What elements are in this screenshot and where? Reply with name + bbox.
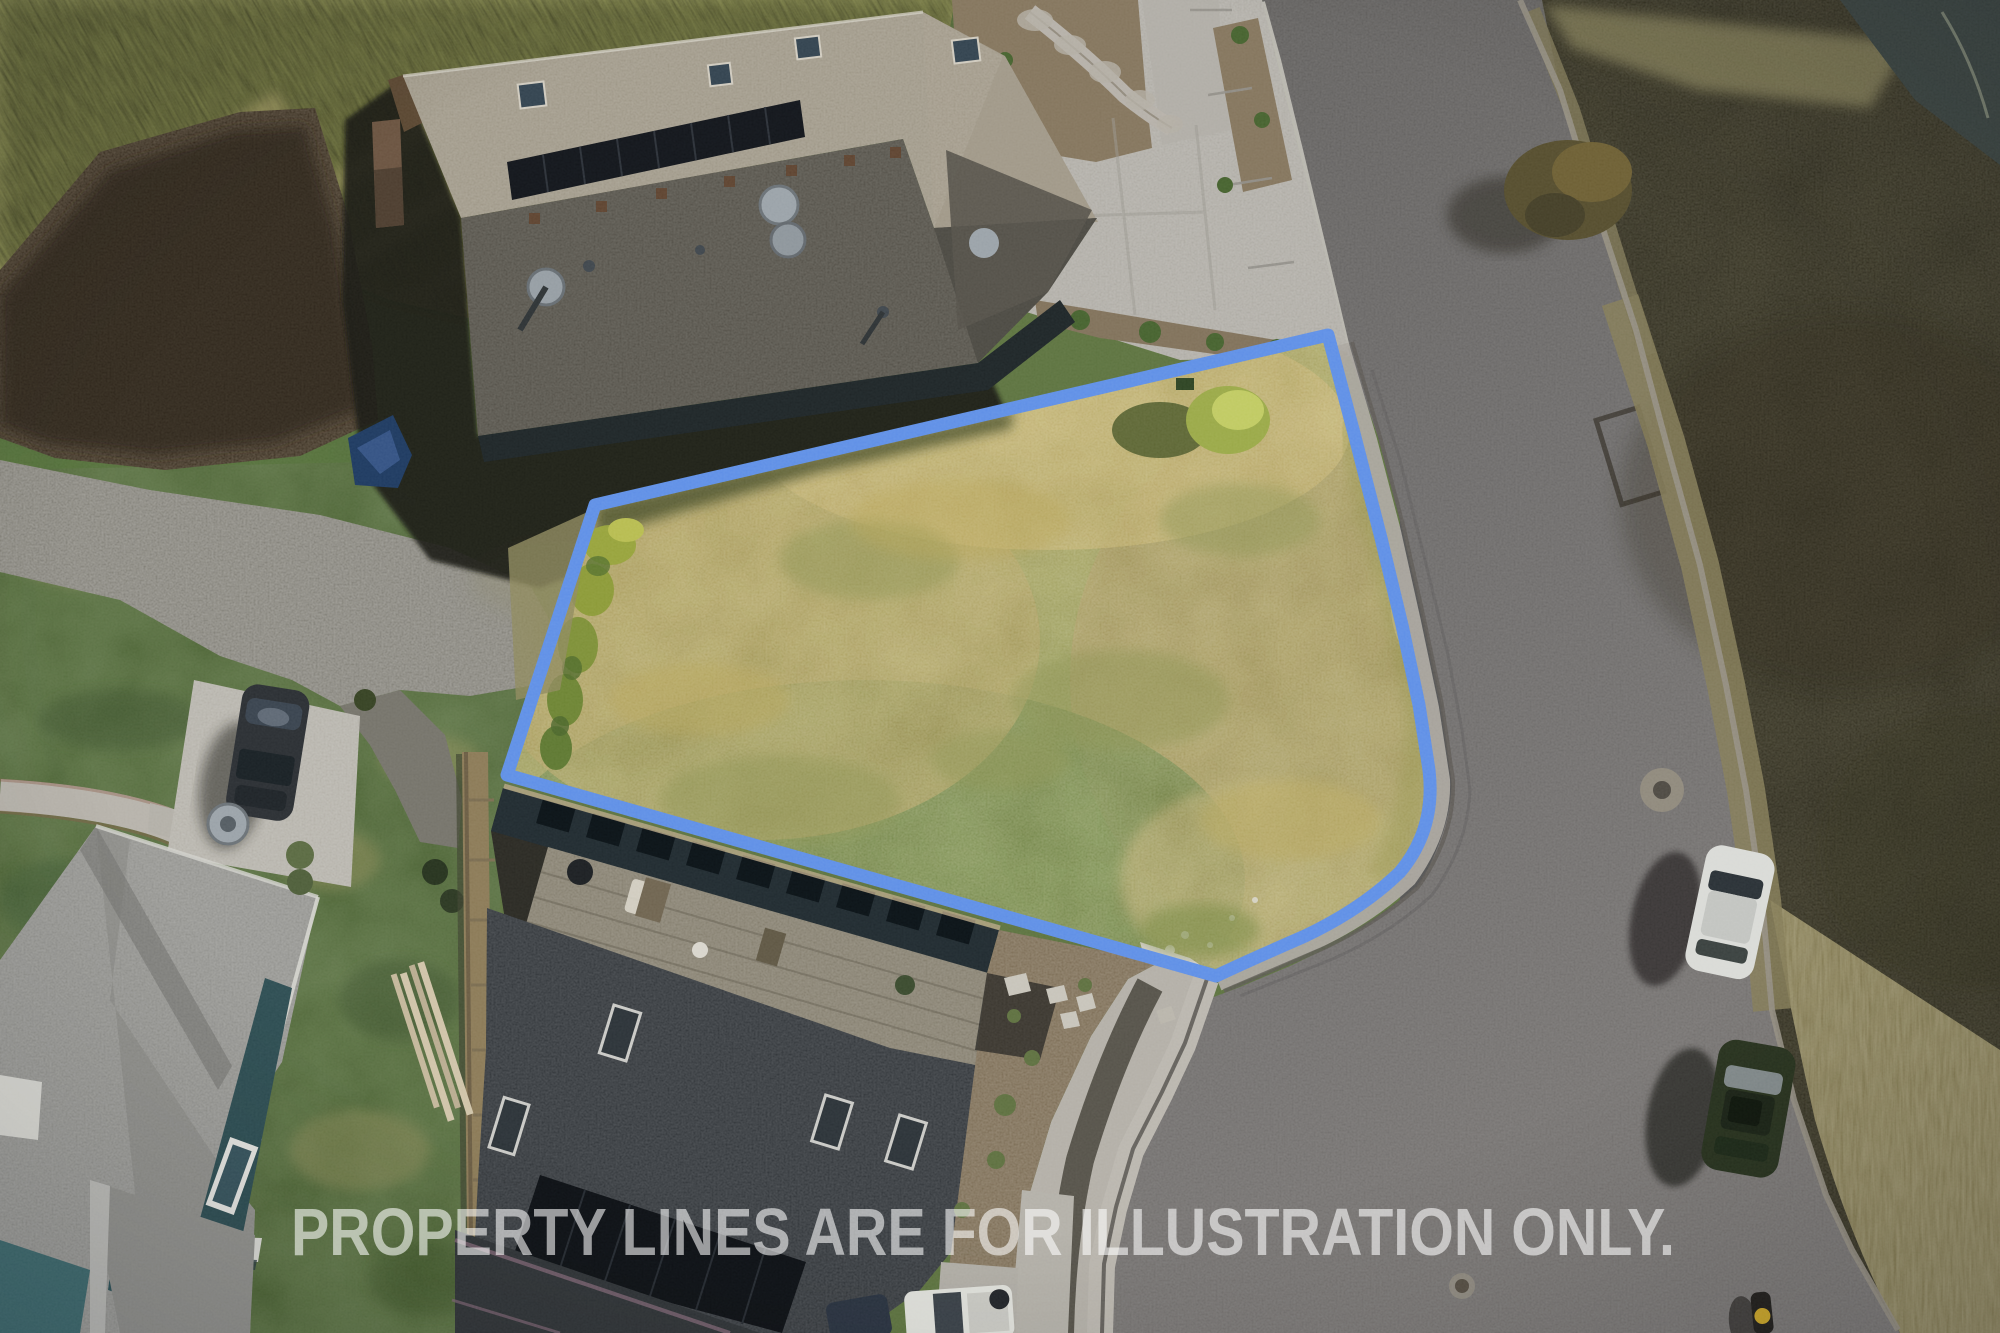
svg-text:PROPERTY LINES ARE FOR ILLUSTR: PROPERTY LINES ARE FOR ILLUSTRATION ONLY… (291, 1195, 1675, 1270)
